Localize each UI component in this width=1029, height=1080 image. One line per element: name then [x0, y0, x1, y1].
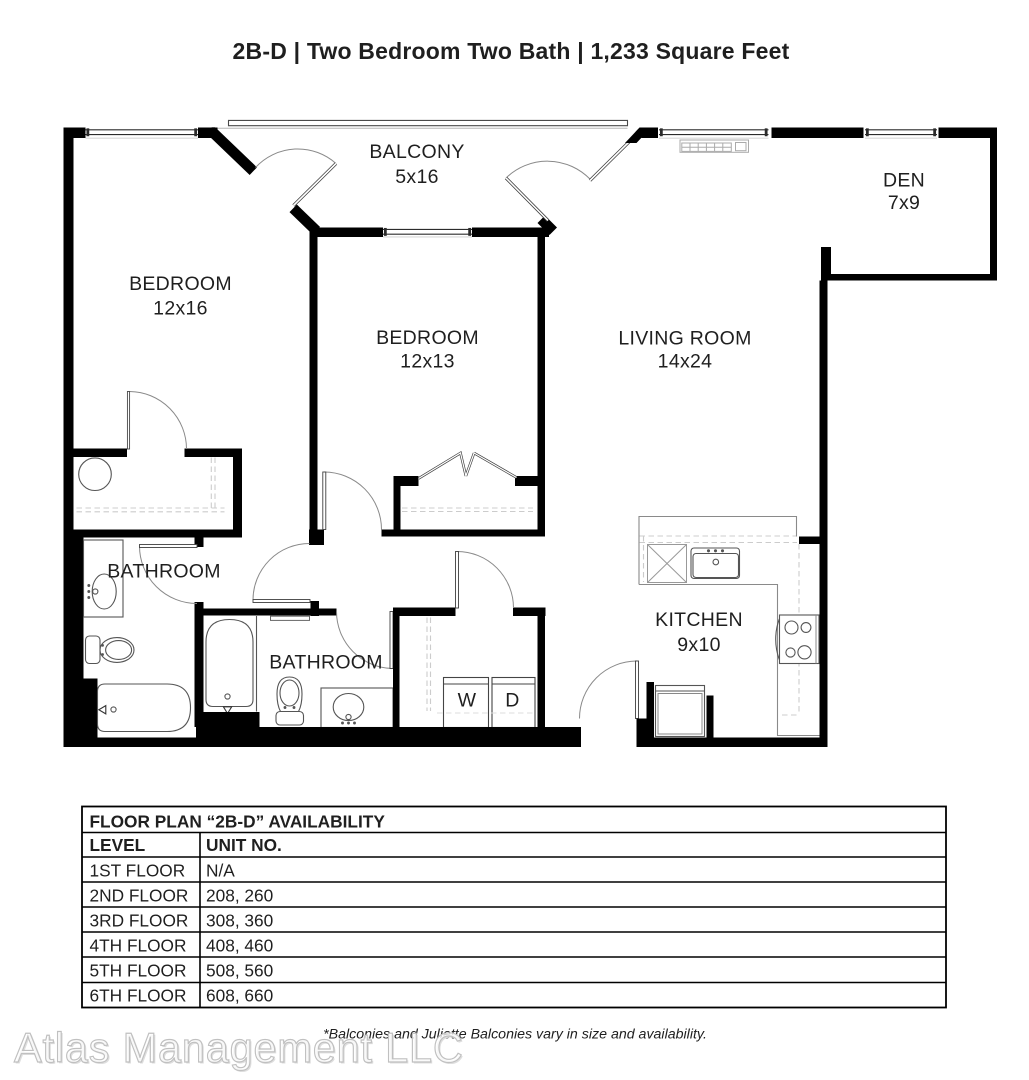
- svg-text:9x10: 9x10: [677, 634, 721, 656]
- svg-text:D: D: [505, 690, 519, 712]
- svg-text:4TH FLOOR: 4TH FLOOR: [90, 936, 187, 956]
- svg-text:BATHROOM: BATHROOM: [107, 561, 221, 583]
- svg-text:408, 460: 408, 460: [206, 936, 273, 956]
- svg-text:N/A: N/A: [206, 861, 235, 881]
- svg-text:BATHROOM: BATHROOM: [269, 652, 383, 674]
- svg-text:3RD FLOOR: 3RD FLOOR: [90, 911, 189, 931]
- svg-text:UNIT NO.: UNIT NO.: [206, 835, 282, 855]
- svg-text:BEDROOM: BEDROOM: [129, 273, 232, 295]
- svg-text:BALCONY: BALCONY: [369, 141, 464, 163]
- svg-text:2B-D | Two Bedroom Two Bath |: 2B-D | Two Bedroom Two Bath | 1,233 Squa…: [233, 38, 790, 64]
- svg-text:BEDROOM: BEDROOM: [376, 327, 479, 349]
- svg-text:12x13: 12x13: [400, 351, 455, 373]
- svg-text:7x9: 7x9: [888, 192, 920, 214]
- svg-text:608, 660: 608, 660: [206, 986, 273, 1006]
- svg-text:1ST FLOOR: 1ST FLOOR: [90, 861, 186, 881]
- svg-text:6TH FLOOR: 6TH FLOOR: [90, 986, 187, 1006]
- svg-text:KITCHEN: KITCHEN: [655, 609, 743, 631]
- svg-text:2ND FLOOR: 2ND FLOOR: [90, 886, 189, 906]
- svg-text:5x16: 5x16: [395, 166, 439, 188]
- svg-text:DEN: DEN: [883, 170, 925, 192]
- svg-text:5TH FLOOR: 5TH FLOOR: [90, 961, 187, 981]
- svg-text:508, 560: 508, 560: [206, 961, 273, 981]
- svg-text:14x24: 14x24: [658, 351, 713, 373]
- svg-text:LEVEL: LEVEL: [90, 835, 146, 855]
- svg-text:308, 360: 308, 360: [206, 911, 273, 931]
- svg-text:LIVING ROOM: LIVING ROOM: [618, 328, 751, 350]
- svg-text:Atlas Management LLC: Atlas Management LLC: [14, 1024, 464, 1071]
- svg-text:W: W: [458, 690, 477, 712]
- svg-text:208, 260: 208, 260: [206, 886, 273, 906]
- svg-text:FLOOR PLAN “2B-D” AVAILABILITY: FLOOR PLAN “2B-D” AVAILABILITY: [90, 812, 386, 832]
- svg-text:12x16: 12x16: [153, 298, 208, 320]
